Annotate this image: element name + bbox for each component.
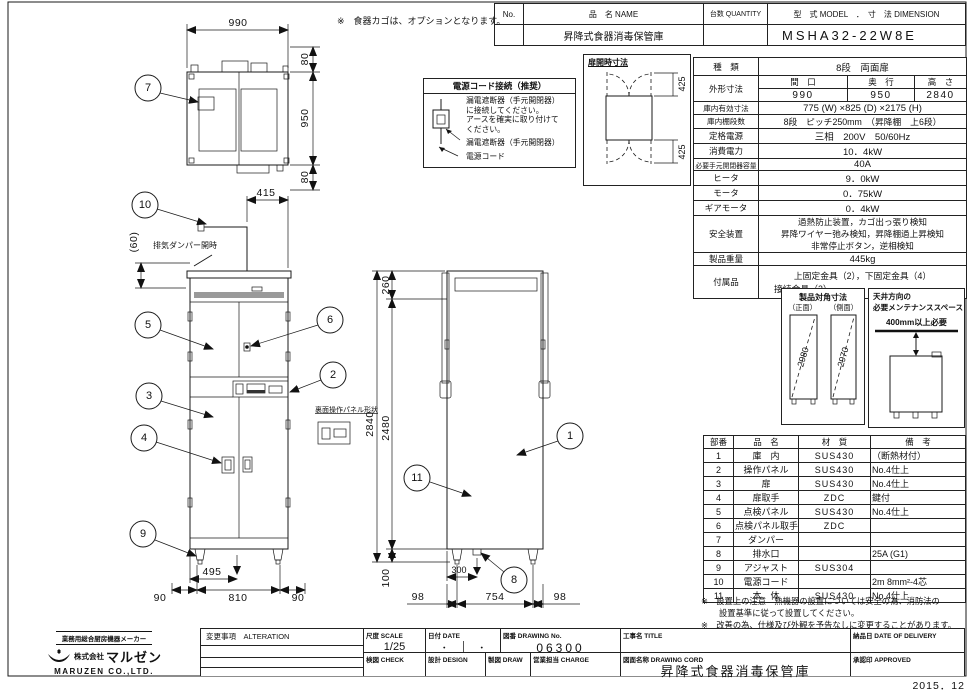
diagonal-dimension-box: 製品対角寸法 （正面） （側面） 2980 2970 xyxy=(781,288,865,425)
parts-header-no: 部番 xyxy=(704,436,734,449)
part-material: ZDC xyxy=(799,491,871,505)
diagonal-front-value: 2980 xyxy=(795,346,810,368)
part-name: 排水口 xyxy=(734,547,799,561)
table-row: 3扉SUS430No.4仕上 xyxy=(704,477,966,491)
model-label: 型 式 MODEL ． 寸 法 DIMENSION xyxy=(768,4,966,25)
spec-table: 種 類 8段 両面扉 外形寸法 間 口 奥 行 高 さ 990 950 2840… xyxy=(693,57,967,299)
part-material: SUS430 xyxy=(799,505,871,519)
alteration-line xyxy=(201,667,363,668)
parts-table: 部番 品 名 材 質 備 考 1庫 内SUS430（断熱材付） 2操作パネルSU… xyxy=(703,435,966,603)
design-label: 設計 DESIGN xyxy=(426,653,485,665)
part-note: No.4仕上 xyxy=(871,505,966,519)
spec-safety-line2: 昇降ワイヤー弛み検知，昇降棚過上昇検知 xyxy=(760,228,965,240)
part-note xyxy=(871,533,966,547)
drawing-name-cell: 図面名称 DRAWING CORD 昇降式食器消毒保管庫 xyxy=(620,652,850,676)
door-box-drawing: 425 425 xyxy=(584,68,690,182)
qty-label: 台数 QUANTITY xyxy=(704,4,768,25)
company-row: 株式会社 マルゼン xyxy=(8,647,200,666)
callout-8: 8 xyxy=(511,574,517,586)
project-cell: 工事名 TITLE xyxy=(620,628,850,652)
part-name: 庫 内 xyxy=(734,449,799,463)
model-value: MSHA32-22W8E xyxy=(768,25,966,46)
breaker-symbol xyxy=(426,96,466,166)
maintenance-box-drawing xyxy=(869,328,964,426)
dim-top-width: 990 xyxy=(228,17,247,29)
dim-front-body: 810 xyxy=(228,592,247,604)
footnote-1: ※ 設置上の注意 熱機器の設置については安全の為、消防法の xyxy=(701,595,969,607)
instruction-line-4: ください。 xyxy=(466,125,560,135)
part-no: 3 xyxy=(704,477,734,491)
maker-logo-block: 業務用総合厨房機器メーカー 株式会社 マルゼン MARUZEN CO.,LTD. xyxy=(8,628,200,676)
spec-inner-value: 775 (W) ×825 (D) ×2175 (H) xyxy=(759,102,967,115)
spec-accessory-line1: 上固定金具（2），下固定金具（4） xyxy=(760,269,965,282)
dim-side-inner: 2480 xyxy=(380,415,392,440)
check-cell: 検図 CHECK xyxy=(363,652,425,676)
diagonal-box-title: 製品対角寸法 xyxy=(782,292,864,303)
alteration-line xyxy=(201,657,363,658)
dim-top-m1: 80 xyxy=(299,53,311,66)
spec-gear-label: ギアモータ xyxy=(694,201,759,216)
date-cell: 日付 DATE ・ ・ xyxy=(425,628,500,652)
approved-label: 承認印 APPROVED xyxy=(851,653,964,665)
spec-weight-value: 445kg xyxy=(759,253,967,266)
part-name: ダンパー xyxy=(734,533,799,547)
dim-side-m2: 98 xyxy=(554,591,567,603)
callout-3: 3 xyxy=(146,390,152,402)
part-name: 扉 xyxy=(734,477,799,491)
diagonal-front-label: （正面） xyxy=(788,303,817,313)
instruction-line-1: 漏電遮断器（手元開閉器） xyxy=(466,96,560,106)
date-label: 日付 DATE xyxy=(426,629,500,641)
design-cell: 設計 DESIGN xyxy=(425,652,485,676)
title-table: No. 品 名 NAME 台数 QUANTITY 型 式 MODEL ． 寸 法… xyxy=(494,3,966,46)
spec-height-label: 高 さ xyxy=(915,76,967,89)
door-box-title: 扉開時寸法 xyxy=(584,55,690,68)
spec-safety-value: 過熱防止装置，カゴ出っ張り検知 昇降ワイヤー弛み検知，昇降棚過上昇検知 非常停止… xyxy=(759,216,967,253)
drawing-no-label: 図番 DRAWING No. xyxy=(501,629,620,641)
charge-label: 営業担当 CHARGE xyxy=(531,653,620,665)
part-material xyxy=(799,547,871,561)
date-stamp: 2015．12 xyxy=(878,678,965,692)
diagonal-side-label: （側面） xyxy=(829,303,858,313)
dim-side-vent: 260 xyxy=(380,275,392,294)
part-note: 25A (G1) xyxy=(871,547,966,561)
diagonal-side-value: 2970 xyxy=(835,346,850,368)
callout-4: 4 xyxy=(141,432,147,444)
power-box-title: 電源コード接続（推奨） xyxy=(424,79,575,94)
alteration-label: 変更事項 ALTERATION xyxy=(201,629,363,644)
spec-kind-value: 8段 両面扉 xyxy=(759,58,967,76)
breaker-label: 漏電遮断器（手元開閉器） xyxy=(466,137,560,148)
dim-front-damper: (60) xyxy=(128,232,140,253)
scale-label: 尺度 SCALE xyxy=(364,629,425,641)
drawing-sheet: 990 80 950 80 7 xyxy=(0,0,976,692)
qty-value xyxy=(704,25,768,46)
footnotes: ※ 設置上の注意 熱機器の設置については安全の為、消防法の 設置基準に従って設置… xyxy=(701,595,969,631)
callout-10: 10 xyxy=(139,199,151,211)
maruzen-logo-icon xyxy=(46,649,72,664)
spec-motor-label: モータ xyxy=(694,186,759,201)
parts-header-note: 備 考 xyxy=(871,436,966,449)
table-row: 10電源コード2m 8mm²-4芯 xyxy=(704,575,966,589)
project-label: 工事名 TITLE xyxy=(621,629,850,641)
spec-height-value: 2840 xyxy=(915,89,967,102)
diagonal-box-drawing: 2980 2970 xyxy=(782,313,864,419)
side-view: 2840 260 2480 100 300 98 754 98 1 11 xyxy=(364,271,583,608)
spec-inner-label: 庫内有効寸法 xyxy=(694,102,759,115)
part-no: 7 xyxy=(704,533,734,547)
dim-front-m1: 90 xyxy=(154,592,167,604)
cord-label: 電源コード xyxy=(466,151,505,162)
spec-kind-label: 種 類 xyxy=(694,58,759,76)
part-material xyxy=(799,575,871,589)
approved-cell: 承認印 APPROVED xyxy=(850,652,965,676)
parts-header-material: 材 質 xyxy=(799,436,871,449)
callout-6: 6 xyxy=(327,314,333,326)
part-note: No.4仕上 xyxy=(871,463,966,477)
part-note: 2m 8mm²-4芯 xyxy=(871,575,966,589)
spec-shelf-value: 8段 ピッチ250mm （昇降棚 上6段） xyxy=(759,115,967,129)
maintenance-space-box: 天井方向の 必要メンテナンススペース 400mm以上必要 xyxy=(868,288,965,428)
charge-cell: 営業担当 CHARGE xyxy=(530,652,620,676)
part-no: 4 xyxy=(704,491,734,505)
part-note: （断熱材付） xyxy=(871,449,966,463)
part-material: ZDC xyxy=(799,519,871,533)
spec-gear-value: 0．4kW xyxy=(759,201,967,216)
spec-depth-value: 950 xyxy=(848,89,915,102)
part-name: 点検パネル xyxy=(734,505,799,519)
spec-power-value: 三相 200V 50/60Hz xyxy=(759,129,967,144)
delivery-label: 納品日 DATE OF DELIVERY xyxy=(851,629,964,641)
damper-note: 排気ダンパー開時 xyxy=(153,240,217,250)
part-no: 1 xyxy=(704,449,734,463)
part-no: 5 xyxy=(704,505,734,519)
spec-motor-value: 0．75kW xyxy=(759,186,967,201)
part-note: 鍵付 xyxy=(871,491,966,505)
table-row: 4扉取手ZDC鍵付 xyxy=(704,491,966,505)
name-label: 品 名 NAME xyxy=(524,4,704,25)
part-material xyxy=(799,533,871,547)
callout-2: 2 xyxy=(330,369,336,381)
spec-shelf-label: 庫内棚段数 xyxy=(694,115,759,129)
dim-side-drain: 300 xyxy=(451,565,466,575)
spec-consumption-value: 10．4kW xyxy=(759,144,967,159)
callout-7: 7 xyxy=(145,82,151,94)
spec-safety-line1: 過熱防止装置，カゴ出っ張り検知 xyxy=(760,216,965,228)
dim-side-m1: 98 xyxy=(412,591,425,603)
part-no: 8 xyxy=(704,547,734,561)
spec-depth-label: 奥 行 xyxy=(848,76,915,89)
table-row: 2操作パネルSUS430No.4仕上 xyxy=(704,463,966,477)
drawing-name-label: 図面名称 DRAWING CORD xyxy=(621,653,705,665)
door-open-box: 扉開時寸法 425 425 xyxy=(583,54,691,186)
dim-top-m2: 80 xyxy=(299,171,311,184)
part-no: 10 xyxy=(704,575,734,589)
spec-breaker-value: 40A xyxy=(759,159,967,171)
draw-label: 製図 DRAW xyxy=(486,653,530,665)
dim-front-m2: 90 xyxy=(292,592,305,604)
front-view: 415 (60) 排気ダンパー開時 495 90 810 90 裏面操作パネル形… xyxy=(128,187,378,604)
draw-cell: 製図 DRAW xyxy=(485,652,530,676)
part-name: 扉取手 xyxy=(734,491,799,505)
maintenance-clearance: 400mm以上必要 xyxy=(869,316,964,328)
instruction-line-2: に接続してください。 xyxy=(466,106,560,116)
no-value xyxy=(495,25,524,46)
part-material: SUS430 xyxy=(799,477,871,491)
table-row: 5点検パネルSUS430No.4仕上 xyxy=(704,505,966,519)
spec-power-label: 定格電源 xyxy=(694,129,759,144)
maintenance-title-2: 必要メンテナンススペース xyxy=(869,302,964,313)
maker-tagline: 業務用総合厨房機器メーカー xyxy=(56,631,153,645)
parts-header-name: 品 名 xyxy=(734,436,799,449)
dim-side-body: 754 xyxy=(485,591,504,603)
dim-front-cord: 415 xyxy=(256,187,275,199)
alteration-line xyxy=(201,645,363,646)
callout-1: 1 xyxy=(567,430,573,442)
title-block: 業務用総合厨房機器メーカー 株式会社 マルゼン MARUZEN CO.,LTD.… xyxy=(8,628,965,676)
part-material: SUS430 xyxy=(799,449,871,463)
check-label: 検図 CHECK xyxy=(364,653,425,665)
power-box-body: 漏電遮断器（手元開閉器） に接続してください。 アースを確実に取り付けて くださ… xyxy=(424,94,575,168)
delivery-cell: 納品日 DATE OF DELIVERY xyxy=(850,628,965,652)
dim-front-drain: 495 xyxy=(202,566,221,578)
side-callouts: 1 11 8 xyxy=(404,423,583,593)
drawing-no-cell: 図番 DRAWING No. 06300 xyxy=(500,628,620,652)
instruction-line-3: アースを確実に取り付けて xyxy=(466,115,560,125)
part-material: SUS430 xyxy=(799,463,871,477)
callout-5: 5 xyxy=(145,319,151,331)
spec-width-value: 990 xyxy=(759,89,848,102)
table-row: 8排水口25A (G1) xyxy=(704,547,966,561)
company-prefix: 株式会社 xyxy=(74,651,104,662)
table-row: 7ダンパー xyxy=(704,533,966,547)
callout-9: 9 xyxy=(140,528,146,540)
part-name: 操作パネル xyxy=(734,463,799,477)
part-note xyxy=(871,561,966,575)
spec-breaker-label: 必要手元開閉器容量 xyxy=(694,159,759,171)
spec-outer-label: 外形寸法 xyxy=(694,76,759,102)
part-name: 点検パネル取手 xyxy=(734,519,799,533)
table-row: 9アジャストSUS304 xyxy=(704,561,966,575)
spec-heater-value: 9．0kW xyxy=(759,171,967,186)
spec-accessory-label: 付属品 xyxy=(694,266,759,299)
dim-side-total: 2840 xyxy=(364,411,376,436)
alteration-box: 変更事項 ALTERATION xyxy=(200,628,363,676)
table-row: 1庫 内SUS430（断熱材付） xyxy=(704,449,966,463)
spec-width-label: 間 口 xyxy=(759,76,848,89)
dim-top-depth: 950 xyxy=(299,108,311,127)
part-no: 2 xyxy=(704,463,734,477)
company-logo-text: マルゼン xyxy=(106,647,162,666)
spec-consumption-label: 消費電力 xyxy=(694,144,759,159)
company-en: MARUZEN CO.,LTD. xyxy=(8,667,200,676)
top-view: 990 80 950 80 7 xyxy=(135,17,320,190)
spec-heater-label: ヒータ xyxy=(694,171,759,186)
footnote-2: 設置基準に従って設置してください。 xyxy=(701,607,969,619)
maintenance-title-1: 天井方向の xyxy=(869,289,964,302)
table-row: 6点検パネル取手ZDC xyxy=(704,519,966,533)
option-note: ※ 食器カゴは、オプションとなります。 xyxy=(337,14,505,27)
spec-weight-label: 製品重量 xyxy=(694,253,759,266)
part-material: SUS304 xyxy=(799,561,871,575)
part-name: 電源コード xyxy=(734,575,799,589)
part-name: アジャスト xyxy=(734,561,799,575)
product-name: 昇降式食器消毒保管庫 xyxy=(524,25,704,46)
dim-side-base: 100 xyxy=(380,568,392,587)
dim-door-top: 425 xyxy=(677,76,687,91)
scale-cell: 尺度 SCALE 1/25 xyxy=(363,628,425,652)
power-cord-box: 電源コード接続（推奨） 漏電遮断器（手元開閉器） に接続してください。 アースを… xyxy=(423,78,576,168)
spec-safety-label: 安全装置 xyxy=(694,216,759,253)
part-note xyxy=(871,519,966,533)
dim-door-bottom: 425 xyxy=(677,144,687,159)
part-note: No.4仕上 xyxy=(871,477,966,491)
diagonal-box-sublabels: （正面） （側面） xyxy=(782,303,864,313)
spec-safety-line3: 非常停止ボタン，逆相検知 xyxy=(760,240,965,252)
part-no: 9 xyxy=(704,561,734,575)
power-box-instructions: 漏電遮断器（手元開閉器） に接続してください。 アースを確実に取り付けて くださ… xyxy=(466,96,560,134)
callout-11: 11 xyxy=(411,472,422,484)
part-no: 6 xyxy=(704,519,734,533)
